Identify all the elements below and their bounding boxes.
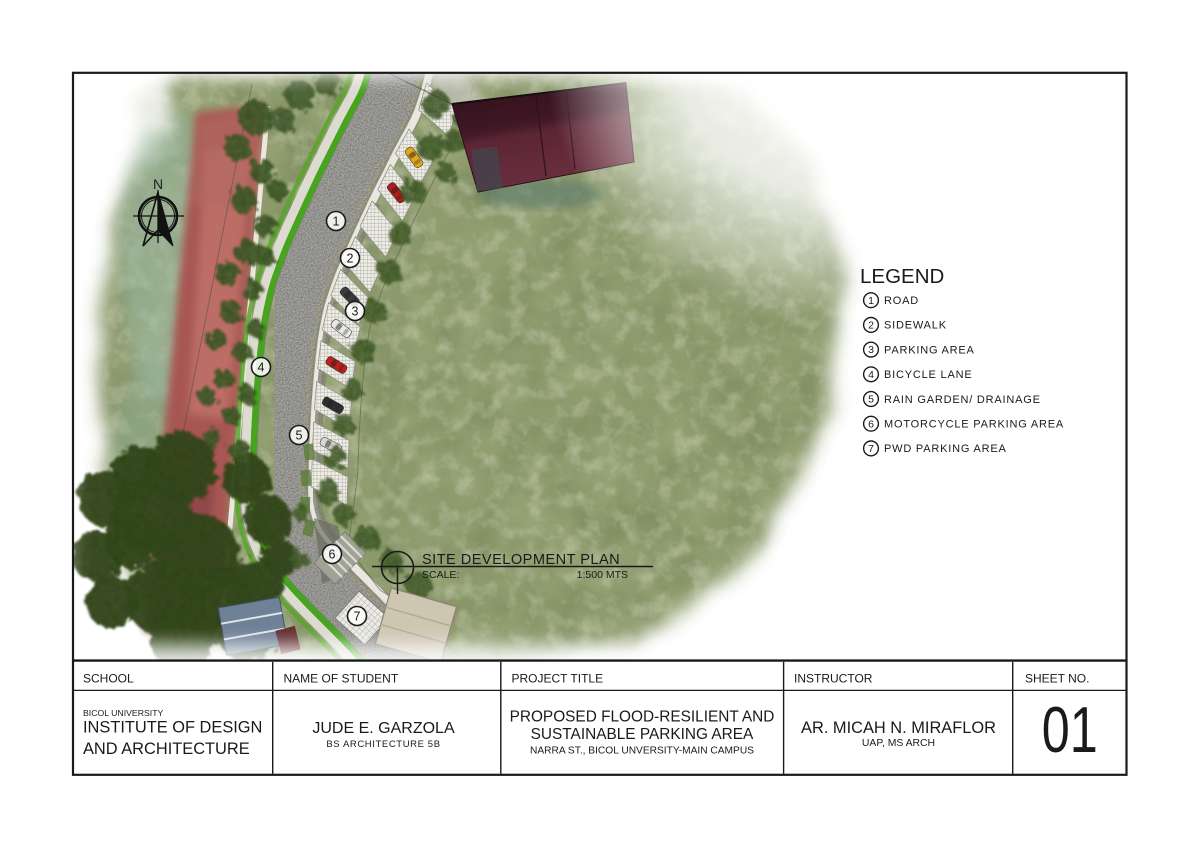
svg-text:RAIN GARDEN/ DRAINAGE: RAIN GARDEN/ DRAINAGE (884, 394, 1041, 406)
svg-text:AR. MICAH N. MIRAFLOR: AR. MICAH N. MIRAFLOR (801, 719, 996, 737)
svg-text:SIDEWALK: SIDEWALK (884, 320, 947, 332)
svg-text:NARRA ST., BICOL UNVERSITY-MAI: NARRA ST., BICOL UNVERSITY-MAIN CAMPUS (530, 746, 754, 757)
svg-text:N: N (153, 176, 163, 192)
svg-text:SCALE:: SCALE: (422, 569, 459, 581)
svg-text:1: 1 (333, 214, 340, 228)
svg-text:BS ARCHITECTURE 5B: BS ARCHITECTURE 5B (326, 739, 440, 750)
svg-text:2: 2 (347, 251, 354, 265)
svg-text:AND ARCHITECTURE: AND ARCHITECTURE (83, 740, 250, 758)
svg-text:3: 3 (352, 304, 359, 318)
svg-text:UAP, MS ARCH: UAP, MS ARCH (862, 738, 935, 749)
svg-text:NAME OF STUDENT: NAME OF STUDENT (284, 672, 399, 686)
svg-text:SITE DEVELOPMENT PLAN: SITE DEVELOPMENT PLAN (422, 552, 620, 568)
svg-text:JUDE E. GARZOLA: JUDE E. GARZOLA (312, 720, 455, 737)
svg-text:SCHOOL: SCHOOL (83, 672, 134, 686)
svg-text:ROAD: ROAD (884, 295, 919, 307)
svg-text:1:500 MTS: 1:500 MTS (577, 569, 628, 581)
svg-text:PARKING AREA: PARKING AREA (884, 344, 975, 356)
svg-text:SUSTAINABLE PARKING AREA: SUSTAINABLE PARKING AREA (531, 726, 754, 743)
svg-text:6: 6 (868, 418, 874, 430)
svg-text:BICYCLE LANE: BICYCLE LANE (884, 369, 972, 381)
svg-text:7: 7 (354, 609, 361, 623)
svg-text:PROJECT TITLE: PROJECT TITLE (512, 672, 604, 686)
svg-text:LEGEND: LEGEND (860, 265, 944, 288)
svg-text:MOTORCYCLE PARKING AREA: MOTORCYCLE PARKING AREA (884, 419, 1064, 431)
svg-text:INSTITUTE OF DESIGN: INSTITUTE OF DESIGN (83, 719, 262, 737)
svg-text:01: 01 (1042, 693, 1098, 766)
svg-text:1: 1 (868, 295, 874, 307)
svg-text:BICOL UNIVERSITY: BICOL UNIVERSITY (83, 708, 164, 718)
svg-text:PROPOSED FLOOD-RESILIENT AND: PROPOSED FLOOD-RESILIENT AND (510, 708, 775, 725)
svg-text:INSTRUCTOR: INSTRUCTOR (794, 672, 873, 686)
svg-text:6: 6 (329, 547, 336, 561)
svg-text:PWD PARKING AREA: PWD PARKING AREA (884, 443, 1007, 455)
svg-text:SHEET NO.: SHEET NO. (1025, 672, 1089, 686)
svg-text:4: 4 (258, 360, 265, 374)
svg-text:7: 7 (868, 443, 874, 455)
svg-text:2: 2 (868, 320, 874, 332)
svg-text:3: 3 (868, 344, 874, 356)
svg-text:4: 4 (868, 369, 874, 381)
svg-text:5: 5 (868, 394, 874, 406)
svg-text:5: 5 (296, 428, 303, 442)
